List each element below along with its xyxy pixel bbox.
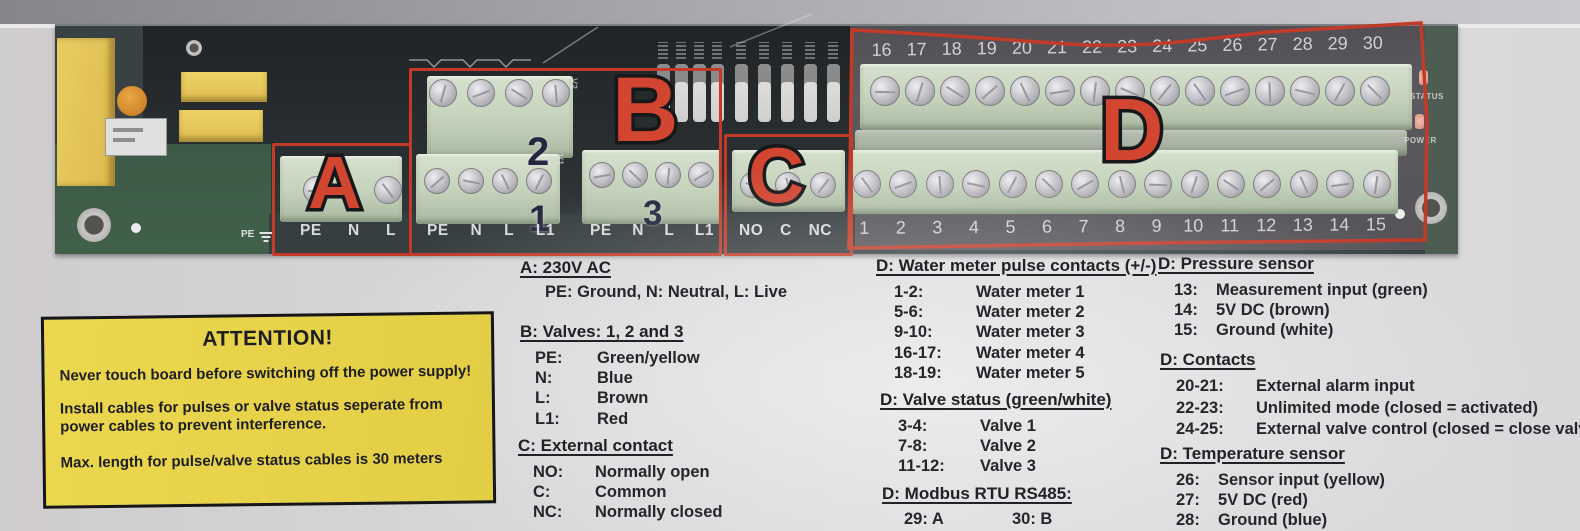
- legend-row: 15:Ground (white): [1174, 320, 1428, 340]
- terminal-number: 3: [919, 217, 956, 238]
- legend-row: 13:Measurement input (green): [1174, 280, 1428, 300]
- power-led-label: POWER: [1404, 136, 1437, 145]
- region-c-letter: CC: [748, 136, 804, 214]
- terminal-screw: [1325, 76, 1355, 106]
- terminal-number: 8: [1102, 216, 1139, 237]
- legend-row: L1:Red: [535, 409, 700, 429]
- terminal-screw: [1290, 170, 1318, 198]
- legend-row: 28:Ground (blue): [1176, 510, 1385, 530]
- terminal-screw: [1220, 76, 1250, 106]
- silkscreen-micro-label: [736, 42, 746, 59]
- silkscreen-pe-label: PE: [241, 230, 254, 239]
- legend-heading: C: External contact: [518, 436, 722, 456]
- legend-section-d-valve-status: D: Valve status (green/white) 3-4:Valve …: [880, 390, 1111, 477]
- silkscreen-micro-label: [759, 42, 769, 59]
- terminal-number: 2: [882, 217, 919, 238]
- legend-row: 22-23:Unlimited mode (closed = activated…: [1176, 398, 1580, 420]
- legend-heading: D: Valve status (green/white): [880, 390, 1111, 410]
- mounting-hole: [77, 208, 111, 242]
- relay-component: [57, 38, 115, 186]
- legend-row: 7-8:Valve 2: [898, 436, 1111, 456]
- terminal-number: 29: [1320, 33, 1355, 54]
- attention-line: Never touch board before switching off t…: [59, 362, 476, 386]
- terminal-number: 14: [1321, 214, 1358, 235]
- legend-section-a: A: 230V AC PE: Ground, N: Neutral, L: Li…: [520, 258, 787, 302]
- terminal-screw: [1185, 76, 1215, 106]
- terminal-number: 23: [1109, 36, 1144, 57]
- attention-line: Max. length for pulse/valve status cable…: [61, 449, 478, 473]
- terminal-number: 30: [1355, 33, 1390, 54]
- terminal-screw: [940, 76, 970, 106]
- diode-component: [804, 64, 817, 122]
- terminal-screw: [1035, 170, 1063, 198]
- terminal-screw: [1290, 76, 1320, 106]
- mounting-hole: [1415, 192, 1447, 224]
- legend-row: 24-25:External valve control (closed = c…: [1176, 419, 1580, 441]
- legend-heading: D: Pressure sensor: [1158, 254, 1428, 274]
- legend-row: NO:Normally open: [533, 462, 722, 482]
- legend-heading: D: Modbus RTU RS485:: [882, 484, 1072, 504]
- legend-section-b: B: Valves: 1, 2 and 3 PE:Green/yellowN:B…: [520, 322, 700, 429]
- terminal-number: 19: [969, 38, 1004, 59]
- legend-heading: D: Temperature sensor: [1160, 444, 1385, 464]
- relay-component: [181, 72, 267, 102]
- region-a-letter: AA: [308, 146, 361, 220]
- legend-heading: A: 230V AC: [520, 258, 787, 278]
- terminal-number: 11: [1211, 215, 1248, 236]
- terminal-screw: [1326, 170, 1354, 198]
- legend-row: 29: A30: B: [904, 510, 1072, 529]
- terminal-screw: [853, 170, 881, 198]
- attention-title: ATTENTION!: [59, 324, 476, 353]
- legend-row: 1-2:Water meter 1: [894, 282, 1156, 302]
- terminal-number: 4: [956, 217, 993, 238]
- terminal-number: 9: [1138, 216, 1175, 237]
- capacitor-component: [117, 86, 147, 116]
- legend-row: 18-19:Water meter 5: [894, 363, 1156, 383]
- terminal-numbers-1-15: 123456789101112131415: [846, 214, 1396, 239]
- diode-component: [735, 64, 748, 122]
- terminal-number: 21: [1039, 37, 1074, 58]
- terminal-screw: [1363, 170, 1391, 198]
- annotated-board-photo: 2 1 3 V2 V1 PE STATUS POWER PENL PENLL1 …: [0, 0, 1580, 531]
- terminal-screw: [870, 76, 900, 106]
- diode-component: [781, 64, 794, 122]
- photo-top-edge: [0, 0, 1580, 24]
- terminal-number: 16: [864, 40, 899, 61]
- legend-row: PE:Green/yellow: [535, 348, 700, 368]
- terminal-number: 20: [1004, 38, 1039, 59]
- legend-heading: D: Water meter pulse contacts (+/-): [876, 256, 1156, 276]
- terminal-number: 13: [1284, 215, 1321, 236]
- status-led-label: STATUS: [1410, 92, 1444, 101]
- terminal-screw: [962, 170, 990, 198]
- terminal-screw: [905, 76, 935, 106]
- terminal-screw: [999, 170, 1027, 198]
- legend-section-d-water-meters: D: Water meter pulse contacts (+/-) 1-2:…: [876, 256, 1156, 383]
- legend-row: C:Common: [533, 482, 722, 502]
- legend-section-d-modbus: D: Modbus RTU RS485: 29: A30: B: [882, 484, 1072, 529]
- ground-symbol-icon: [259, 232, 273, 244]
- terminal-number: 25: [1180, 35, 1215, 56]
- terminal-number: 17: [899, 39, 934, 60]
- fuse-component: [105, 118, 167, 156]
- terminal-number: 22: [1074, 37, 1109, 58]
- terminal-screw: [1255, 76, 1285, 106]
- terminal-screw: [975, 76, 1005, 106]
- silkscreen-micro-label: [805, 42, 815, 59]
- legend-row: 16-17:Water meter 4: [894, 343, 1156, 363]
- attention-warning-label: ATTENTION! Never touch board before swit…: [41, 311, 496, 509]
- legend-row: L:Brown: [535, 388, 700, 408]
- terminal-number: 10: [1175, 215, 1212, 236]
- legend-row: 9-10:Water meter 3: [894, 322, 1156, 342]
- legend-row: 5-6:Water meter 2: [894, 302, 1156, 322]
- terminal-number: 12: [1248, 215, 1285, 236]
- region-d-letter: DD: [1100, 86, 1164, 174]
- terminal-number: 28: [1285, 34, 1320, 55]
- legend-row: 26:Sensor input (yellow): [1176, 470, 1385, 490]
- status-led: [1419, 70, 1428, 85]
- solder-pad: [131, 223, 141, 233]
- terminal-screw: [1045, 76, 1075, 106]
- power-led: [1415, 114, 1424, 129]
- legend-section-c: C: External contact NO:Normally openC:Co…: [518, 436, 722, 523]
- legend-row: N:Blue: [535, 368, 700, 388]
- terminal-number: 24: [1145, 36, 1180, 57]
- silkscreen-micro-label: [676, 42, 686, 59]
- legend-section-d-pressure-sensor: D: Pressure sensor 13:Measurement input …: [1158, 254, 1428, 341]
- terminal-number: 7: [1065, 216, 1102, 237]
- legend-section-d-contacts: D: Contacts 20-21:External alarm input22…: [1160, 350, 1580, 441]
- legend-row: 14:5V DC (brown): [1174, 300, 1428, 320]
- attention-line: Install cables for pulses or valve statu…: [60, 395, 477, 437]
- terminal-number: 18: [934, 39, 969, 60]
- terminal-number: 5: [992, 217, 1029, 238]
- legend-section-d-temperature-sensor: D: Temperature sensor 26:Sensor input (y…: [1160, 444, 1385, 531]
- relay-component: [179, 110, 263, 142]
- legend-row: 20-21:External alarm input: [1176, 376, 1580, 398]
- terminal-screw: [1217, 170, 1245, 198]
- terminal-screw: [926, 170, 954, 198]
- terminal-number: 6: [1029, 216, 1066, 237]
- terminal-number: 26: [1215, 35, 1250, 56]
- diode-component: [758, 64, 771, 122]
- legend-note: PE: Ground, N: Neutral, L: Live: [545, 283, 787, 302]
- terminal-number: 15: [1358, 214, 1395, 235]
- legend-row: NC:Normally closed: [533, 502, 722, 522]
- legend-row: 27:5V DC (red): [1176, 490, 1385, 510]
- terminal-number: 27: [1250, 34, 1285, 55]
- silkscreen-micro-label: [782, 42, 792, 59]
- terminal-screw: [1181, 170, 1209, 198]
- legend-heading: D: Contacts: [1160, 350, 1580, 370]
- region-b-letter: BB: [612, 64, 678, 156]
- silkscreen-micro-label: [694, 42, 704, 59]
- silkscreen-micro-label: [658, 42, 668, 59]
- terminal-screw: [1360, 76, 1390, 106]
- diode-component: [827, 64, 840, 122]
- terminal-screw: [1010, 76, 1040, 106]
- silkscreen-micro-label: [712, 42, 722, 59]
- mounting-hole: [186, 40, 202, 56]
- legend-row: 11-12:Valve 3: [898, 456, 1111, 476]
- legend-row: 3-4:Valve 1: [898, 416, 1111, 436]
- legend-heading: B: Valves: 1, 2 and 3: [520, 322, 700, 342]
- silkscreen-micro-label: [828, 42, 838, 59]
